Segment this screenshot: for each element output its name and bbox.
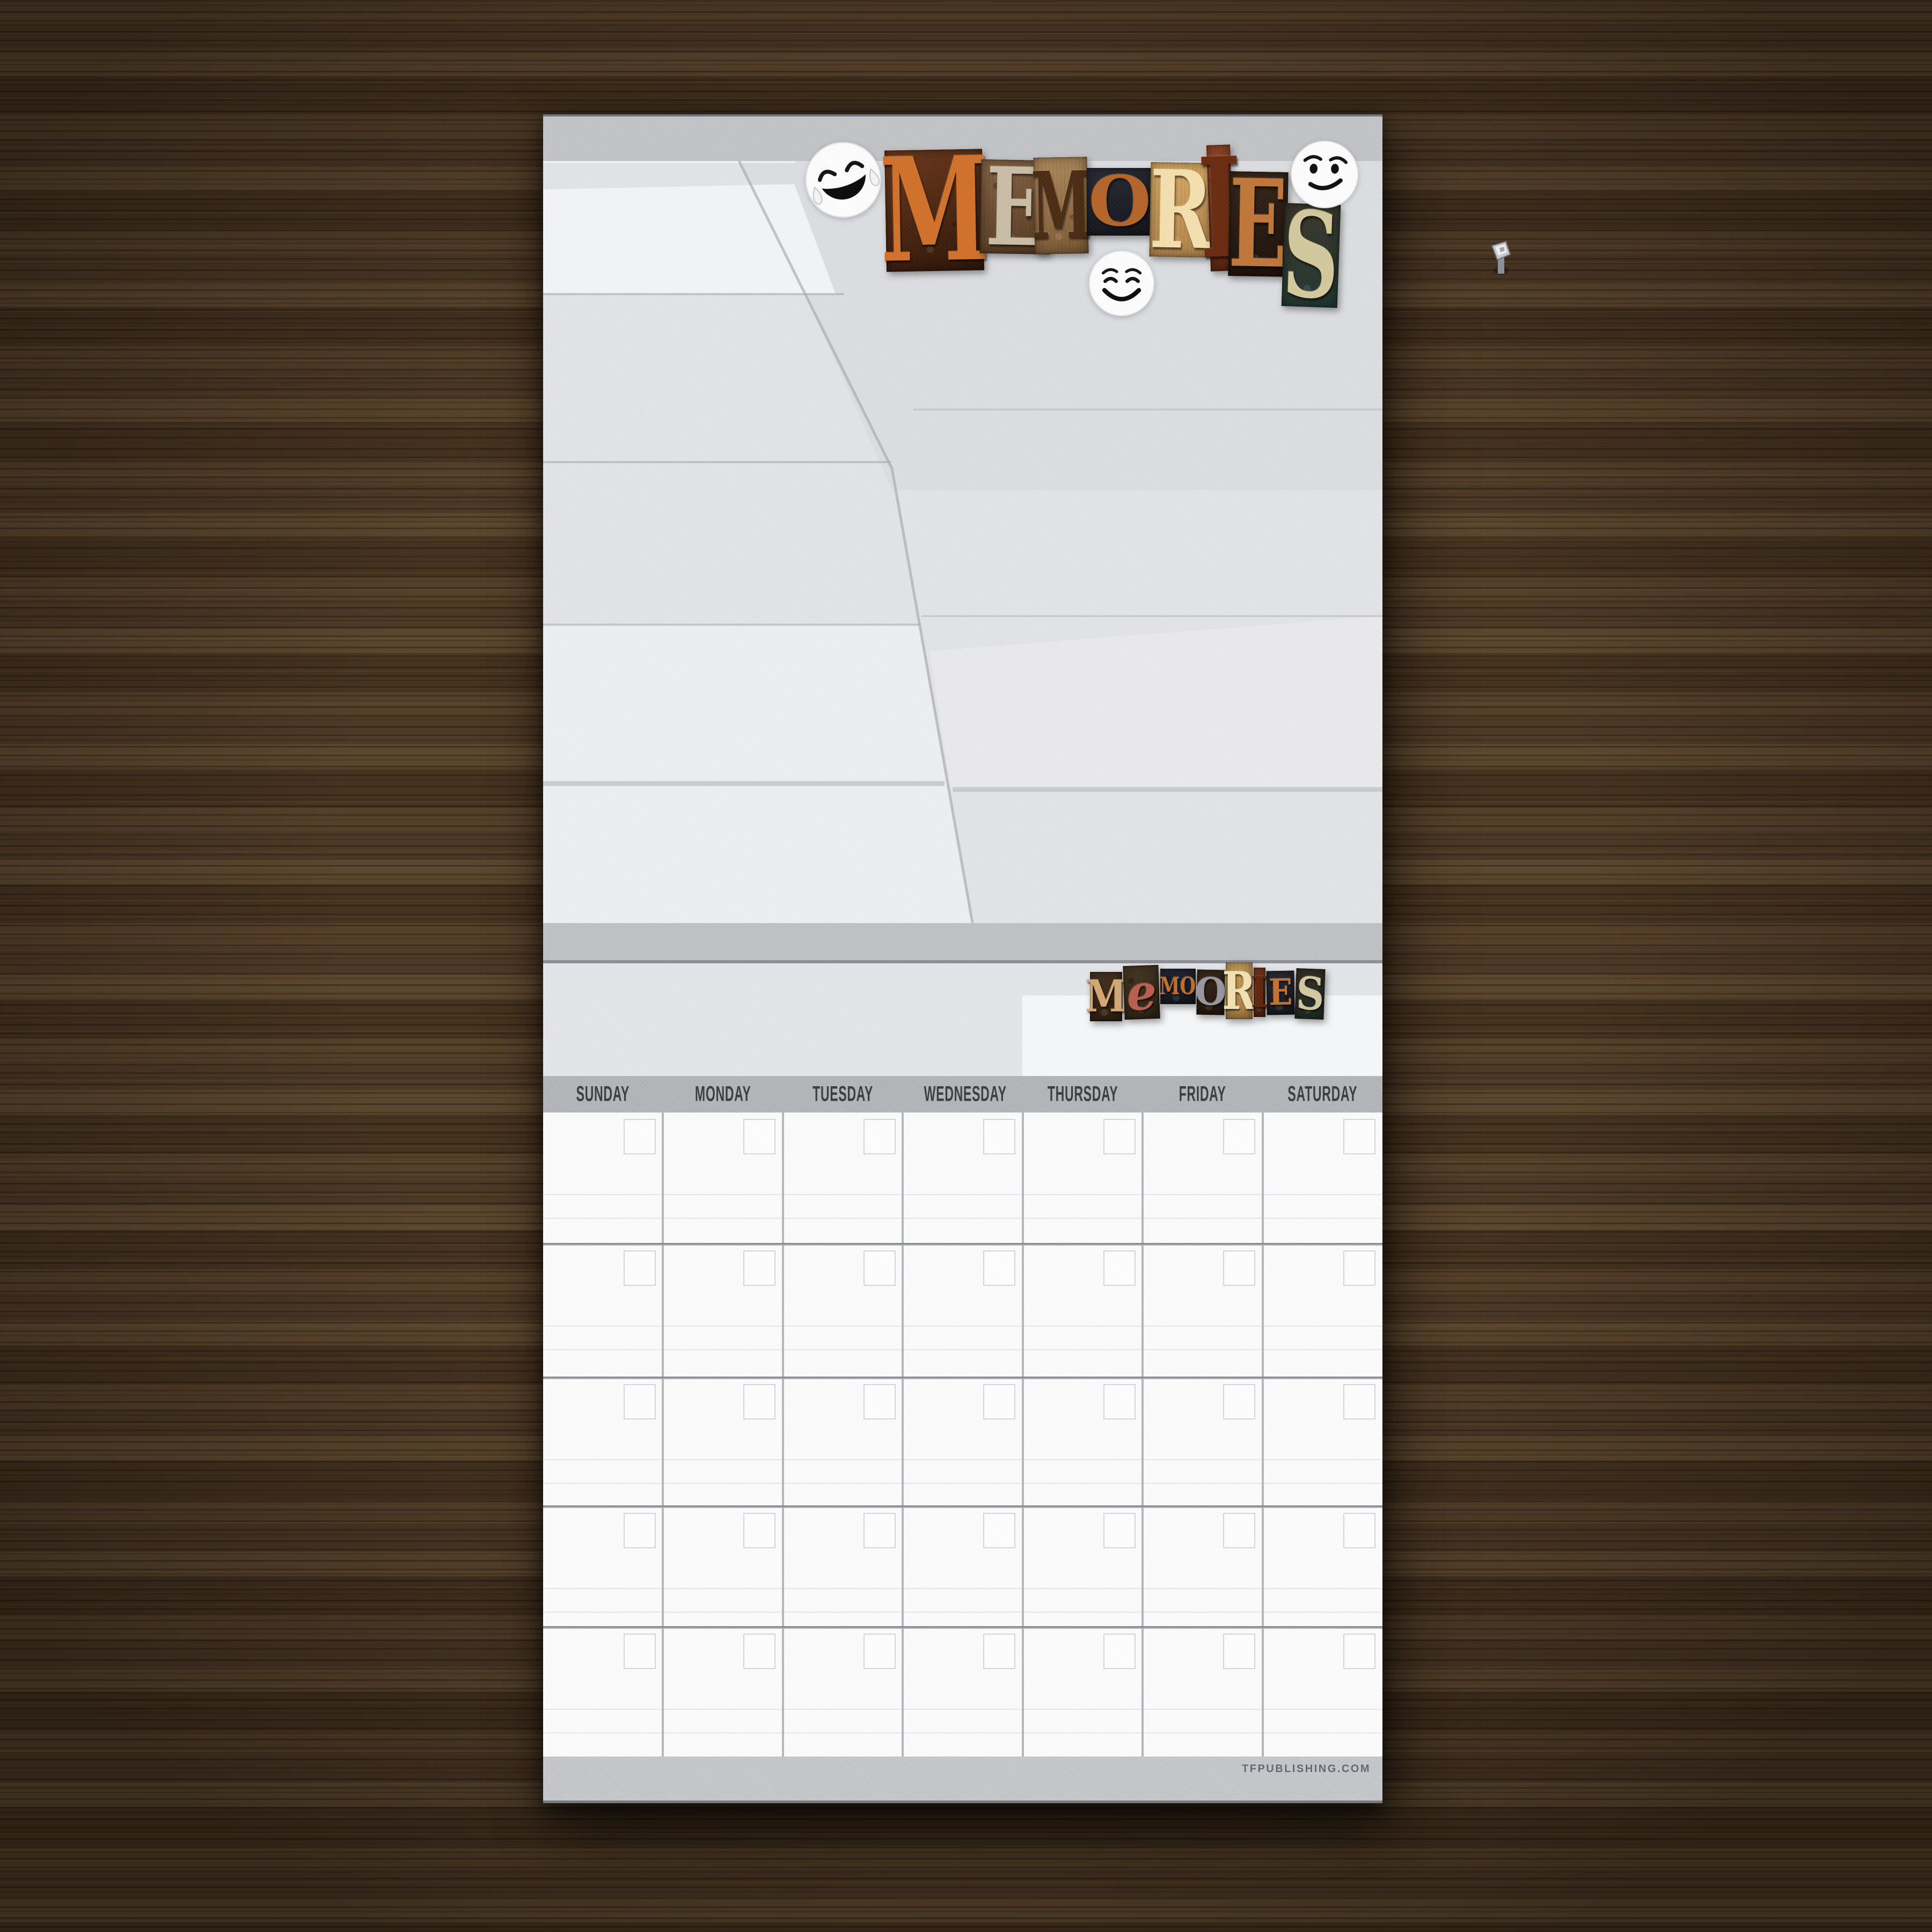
title-letter-block: R xyxy=(1226,962,1253,1019)
title-letter: E xyxy=(1268,975,1292,1011)
page-bottom-edge xyxy=(543,1801,1382,1803)
title-letter-block: O xyxy=(1196,970,1225,1015)
relaxed-smiling-emoji-sticker xyxy=(1087,249,1156,320)
title-letter-block: S xyxy=(1294,968,1325,1020)
wall-calendar: MEMORIES MeMOORIES xyxy=(543,114,1382,1803)
title-letter: e xyxy=(1126,967,1158,1018)
title-letter-block: I xyxy=(1254,968,1265,1017)
title-letter: MO xyxy=(1160,975,1196,998)
title-letter: M xyxy=(1085,975,1127,1018)
title-letter-block: M xyxy=(1090,972,1122,1021)
title-letter: S xyxy=(1295,971,1324,1016)
title-letter-block: MO xyxy=(1160,969,1196,1004)
title-letter-block: E xyxy=(1266,971,1294,1015)
title-letter-block: e xyxy=(1123,965,1160,1020)
wood-surface-background: MEMORIES MeMOORIES xyxy=(0,0,1932,1932)
calendar-sub-title: MeMOORIES xyxy=(543,114,1382,1803)
page-top-edge xyxy=(543,114,1382,116)
smirking-emoji-sticker xyxy=(1286,137,1362,215)
metal-pin-icon xyxy=(1489,240,1512,278)
